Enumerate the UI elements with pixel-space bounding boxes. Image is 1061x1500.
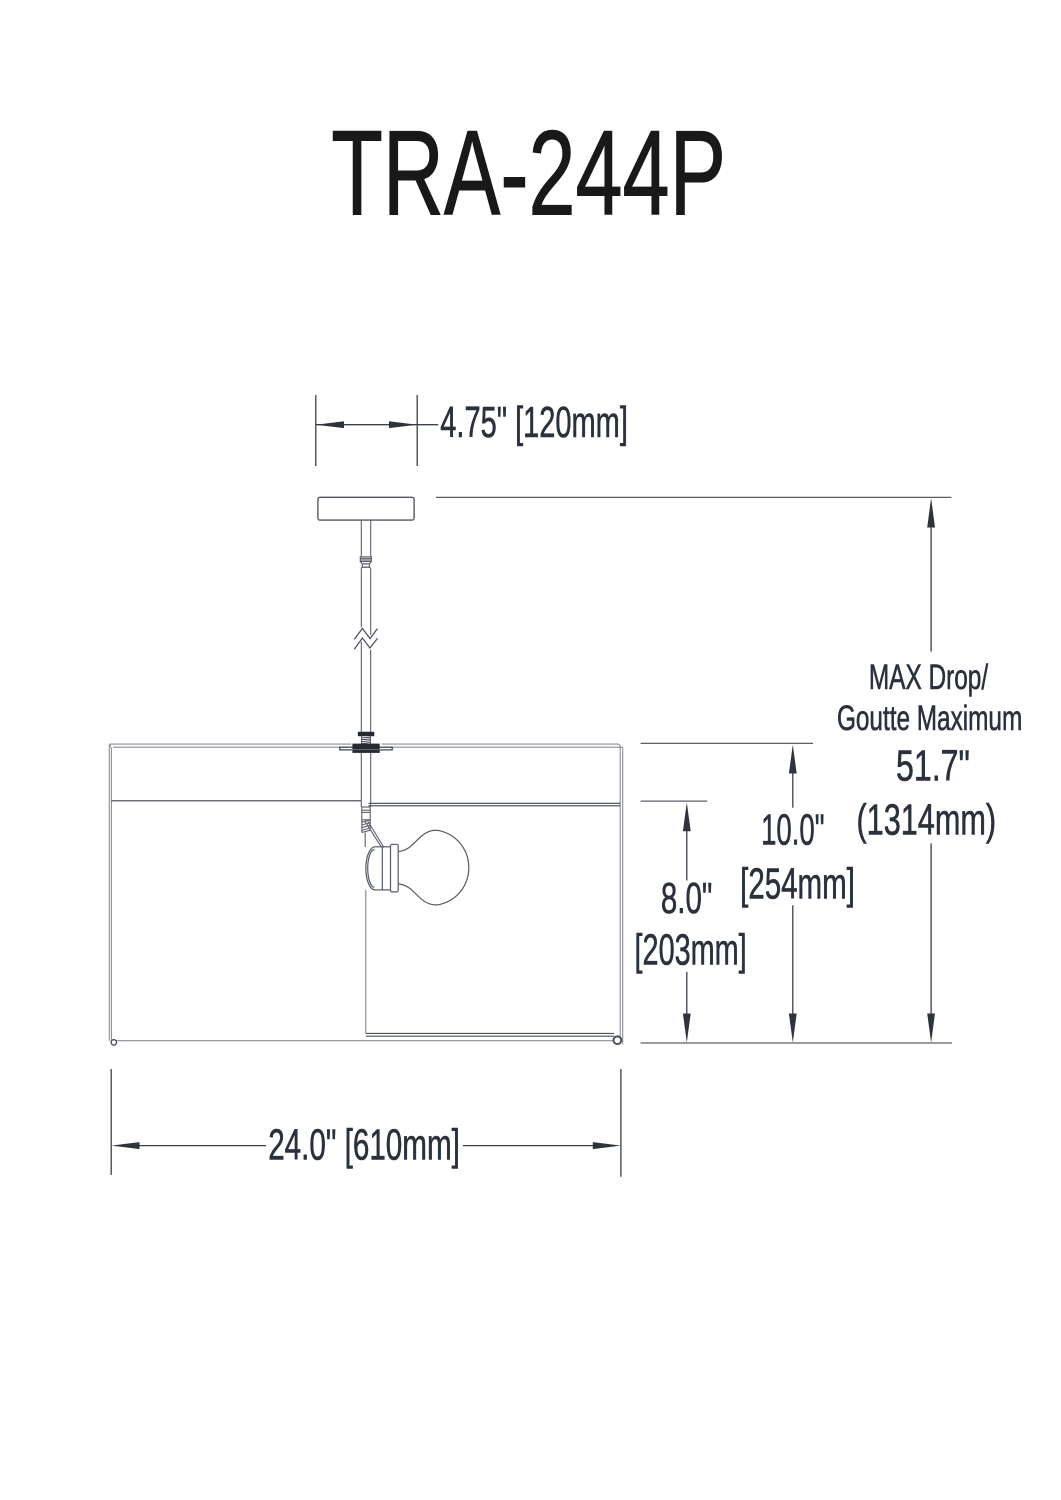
svg-text:Goutte Maximum: Goutte Maximum: [837, 698, 1022, 738]
svg-text:MAX Drop/: MAX Drop/: [869, 657, 988, 697]
svg-text:[203mm]: [203mm]: [635, 926, 747, 975]
svg-text:8.0": 8.0": [661, 874, 712, 923]
svg-text:51.7": 51.7": [896, 742, 970, 791]
svg-text:4.75" [120mm]: 4.75" [120mm]: [440, 398, 628, 447]
svg-text:24.0" [610mm]: 24.0" [610mm]: [268, 1120, 460, 1169]
svg-text:[254mm]: [254mm]: [740, 860, 855, 909]
svg-text:TRA-244P: TRA-244P: [331, 105, 726, 240]
svg-text:(1314mm): (1314mm): [856, 795, 996, 844]
svg-text:10.0": 10.0": [761, 806, 824, 855]
